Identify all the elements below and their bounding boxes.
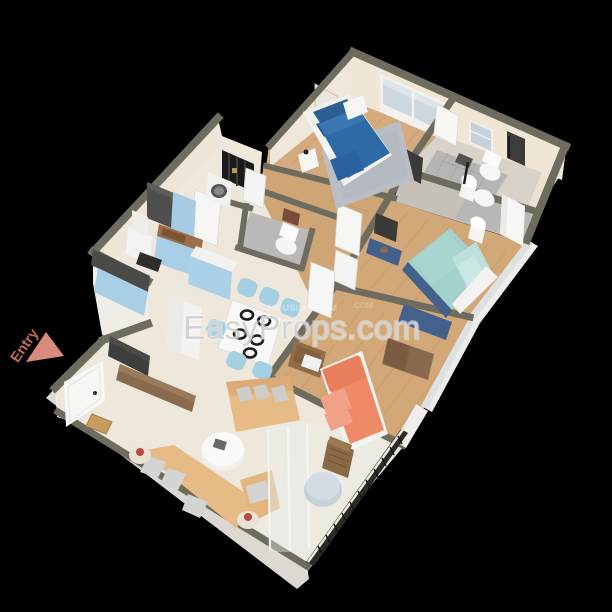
svg-text:EasyProps.com: EasyProps.com (183, 309, 421, 346)
